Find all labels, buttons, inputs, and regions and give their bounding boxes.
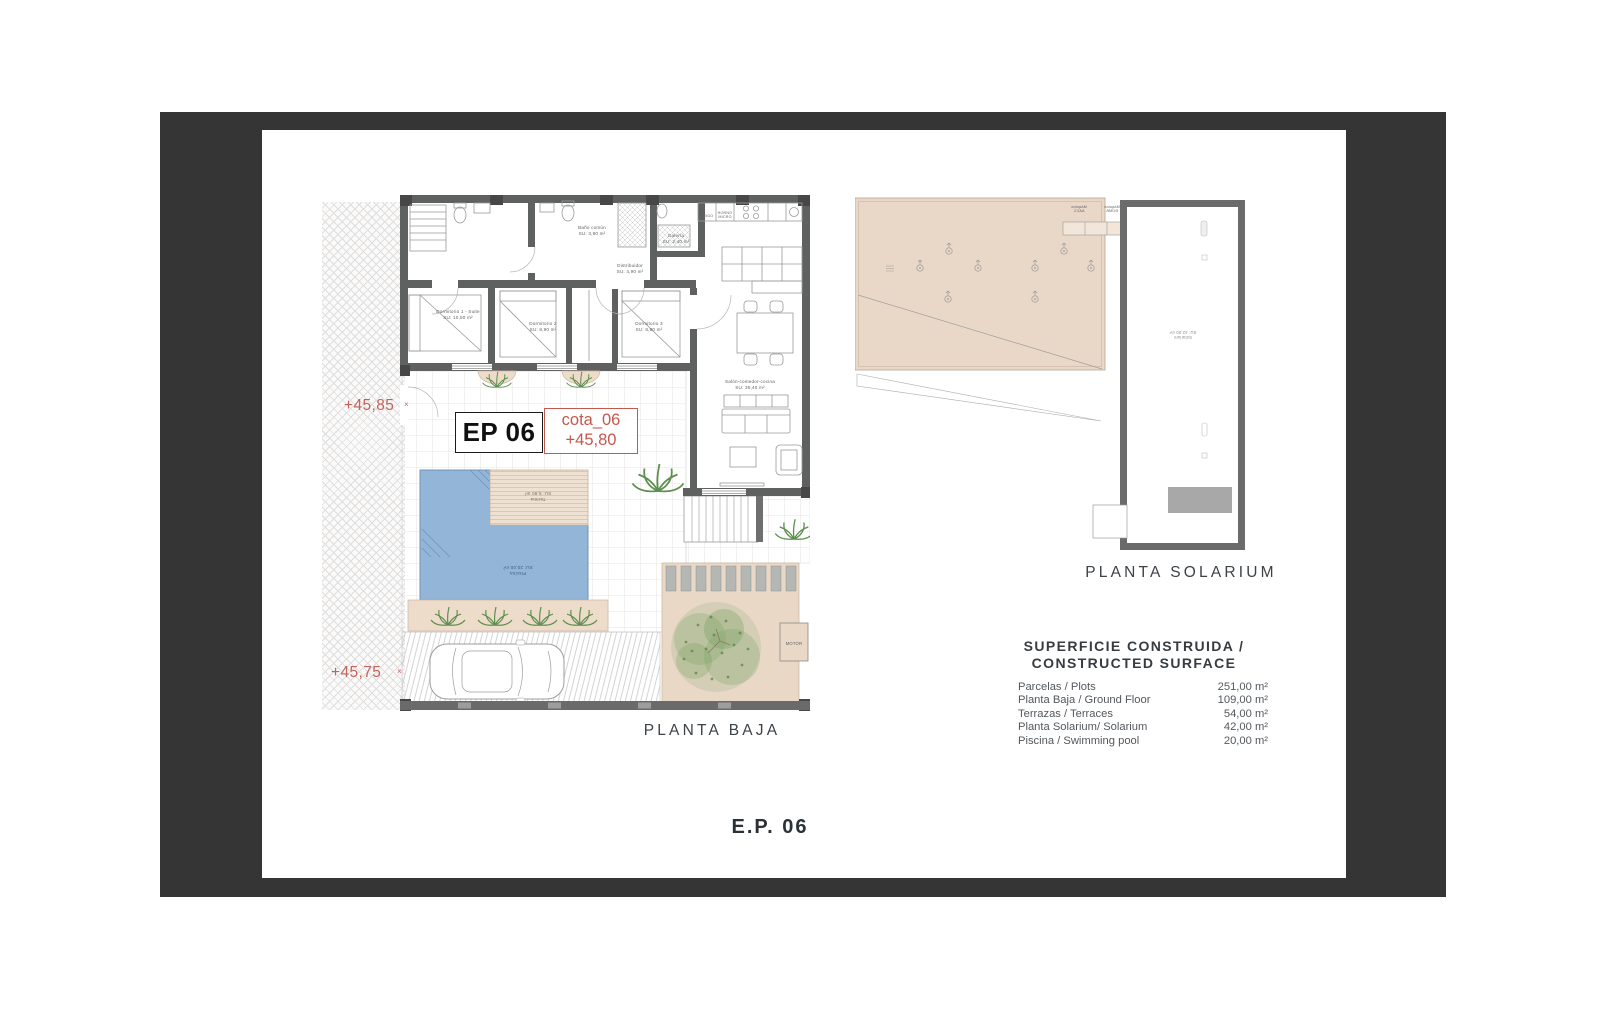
kitchen-label-fridge: FRIGO [698, 214, 716, 218]
motor-label: MOTOR [780, 641, 808, 646]
room-label-dormitorio3: Dormitorio 3 SU: 8,90 m² [609, 321, 689, 333]
table-row: Terrazas / Terraces 54,00 m² [1000, 708, 1268, 721]
level-mark-upper: +45,85 [344, 397, 394, 415]
room-label-galeria: Galería SU: 2,40 m² [646, 233, 706, 245]
garden-tree [671, 602, 761, 692]
louver-fence [666, 566, 796, 591]
sheet-code: E.P. 06 [650, 816, 890, 839]
room-label-distribuidor: Distribuidor SU: 4,90 m² [600, 263, 660, 275]
room-label-dormitorio1: Dormitorio 1 - Suite SU: 10,50 m² [418, 309, 498, 321]
survey-mark-upper: × [404, 400, 409, 409]
room-label-dormitorio2: Dormitorio 2 SU: 8,90 m² [503, 321, 583, 333]
solarium-room [1093, 200, 1245, 550]
stair-void-outline [857, 374, 1101, 421]
ground-floor-title: PLANTA BAJA [592, 722, 832, 740]
solarium-title: PLANTA SOLARIUM [1061, 564, 1301, 582]
roof-area [855, 198, 1129, 370]
table-row: Piscina / Swimming pool 20,00 m² [1000, 735, 1268, 748]
surface-table-title: SUPERFICIE CONSTRUIDA / CONSTRUCTED SURF… [1000, 638, 1268, 672]
planter-strip [408, 600, 608, 631]
room-label-tarima: Tarima SU: 9,80 m² [500, 490, 576, 502]
room-label-bano: Baño común SU: 3,90 m² [552, 225, 632, 237]
cota-box: cota_06 +45,80 [544, 408, 638, 454]
table-row: Parcelas / Plots 251,00 m² [1000, 681, 1268, 694]
level-mark-lower: +45,75 [331, 664, 381, 682]
street-hatch-strip [322, 202, 405, 710]
table-row: Planta Solarium/ Solarium 42,00 m² [1000, 721, 1268, 734]
surface-table: SUPERFICIE CONSTRUIDA / CONSTRUCTED SURF… [1000, 638, 1268, 748]
room-label-piscina: Piscina SU: 20,00 m² [478, 564, 558, 576]
exterior-stairs [684, 496, 763, 542]
machine-label-aacc: Máquina AACC [1063, 205, 1095, 214]
room-label-salon: Salón-comedor-cocina SU: 35,40 m² [700, 379, 800, 391]
garden [662, 563, 808, 707]
ep-code-box: EP 06 [455, 412, 543, 453]
car [430, 640, 564, 703]
machine-label-bomb: Máquina BOMB [1096, 205, 1128, 214]
plot-bottom-wall [400, 701, 810, 710]
survey-mark-lower: × [397, 667, 402, 676]
kitchen-label-oven: HORNO MICRO [716, 211, 734, 220]
table-row: Planta Baja / Ground Floor 109,00 m² [1000, 694, 1268, 707]
surface-table-rows: Parcelas / Plots 251,00 m² Planta Baja /… [1000, 681, 1268, 748]
solarium-plan [855, 195, 1250, 560]
room-label-solarium: Solarium SU: 42,00 m² [1156, 329, 1210, 340]
sheet-canvas: Dormitorio 1 - Suite SU: 10,50 m² Dormit… [0, 0, 1600, 1024]
